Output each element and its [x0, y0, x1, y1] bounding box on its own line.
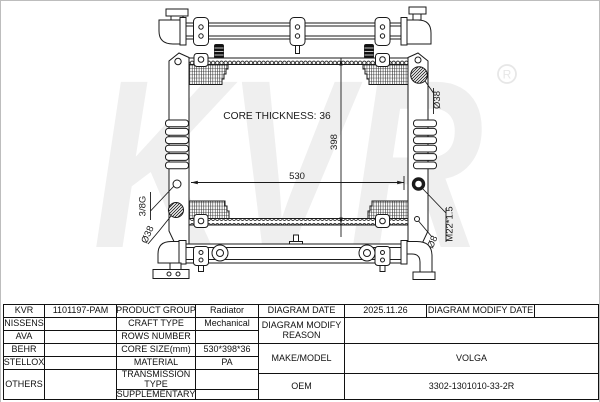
make-model-value: VOLGA	[344, 343, 599, 374]
spec-label: MATERIAL	[116, 356, 196, 370]
spec-label: PRODUCT GROUP	[116, 304, 196, 318]
part-number-cell: 1101197-PAM	[44, 304, 117, 318]
spec-value: 530*398*36	[195, 343, 259, 357]
brand-cell: AVA	[3, 330, 45, 344]
spec-value: Radiator	[195, 304, 259, 318]
empty-cell	[44, 369, 117, 400]
dim-width-label: 530	[289, 171, 305, 182]
spec-table: KVR NISSENS AVA BEHR STELLOX OTHERS 1101…	[3, 304, 599, 400]
front-bottom-tab	[376, 215, 390, 228]
inlet-pipe	[411, 67, 428, 84]
dim-height-label: 398	[329, 134, 340, 150]
small-hole	[415, 217, 420, 222]
diagram-modify-reason-value	[344, 317, 599, 344]
spec-label: CRAFT TYPE	[116, 317, 196, 331]
bottom-ring	[359, 245, 375, 261]
drain-port	[173, 180, 181, 188]
diagram-modify-date-label: DIAGRAM MODIFY DATE	[426, 304, 535, 318]
filler-cap	[414, 179, 424, 189]
left-tank	[166, 53, 190, 250]
make-model-label: MAKE/MODEL	[258, 343, 345, 374]
diagram-date-value: 2025.11.26	[344, 304, 427, 318]
front-top-tab	[194, 54, 208, 67]
brand-cell: KVR	[3, 304, 45, 318]
brand-cell: OTHERS	[3, 369, 45, 400]
top-view-bracket	[375, 18, 390, 46]
empty-cell	[44, 330, 117, 344]
bottom-ring	[212, 245, 228, 261]
spec-label: ROWS NUMBER	[116, 330, 196, 344]
brand-cell: BEHR	[3, 343, 45, 357]
fin-block	[363, 65, 408, 85]
spec-value: PA	[195, 356, 259, 370]
diagram-date-label: DIAGRAM DATE	[258, 304, 345, 318]
inlet-diameter-label: Ø38	[432, 91, 443, 109]
cap-thread-label: M22*1.5	[445, 206, 456, 241]
registered-mark-letter: R	[503, 68, 512, 82]
fin-block	[189, 65, 228, 85]
mounting-stud	[365, 45, 374, 59]
spec-value	[195, 389, 259, 400]
front-top-tab	[376, 54, 390, 67]
spec-value	[195, 369, 259, 390]
top-view-bracket	[194, 18, 209, 46]
brand-cell: NISSENS	[3, 317, 45, 331]
spec-label: CORE SIZE(mm)	[116, 343, 196, 357]
diagram-modify-reason-label: DIAGRAM MODIFY REASON	[258, 317, 345, 344]
spec-label: SUPPLEMENTARY	[116, 389, 196, 400]
mounting-stud	[215, 45, 224, 59]
empty-cell	[44, 317, 117, 331]
empty-cell	[44, 343, 117, 357]
drain-thread-label: 3/8G	[138, 196, 149, 217]
core-thickness-label: CORE THICKNESS: 36	[223, 111, 331, 122]
catalog-diagram-page: KVR R	[0, 0, 600, 402]
empty-cell	[44, 356, 117, 370]
oem-value: 3302-1301010-33-2R	[344, 373, 599, 400]
front-bottom-tab	[194, 215, 208, 228]
spec-value: Mechanical	[195, 317, 259, 331]
radiator-technical-drawing: KVR R	[1, 1, 600, 303]
brand-cell: STELLOX	[3, 356, 45, 370]
outlet-pipe	[169, 203, 184, 218]
spec-value	[195, 330, 259, 344]
oem-label: OEM	[258, 373, 345, 400]
diagram-modify-date-value	[534, 304, 599, 318]
spec-label: TRANSMISSION TYPE	[116, 369, 196, 390]
